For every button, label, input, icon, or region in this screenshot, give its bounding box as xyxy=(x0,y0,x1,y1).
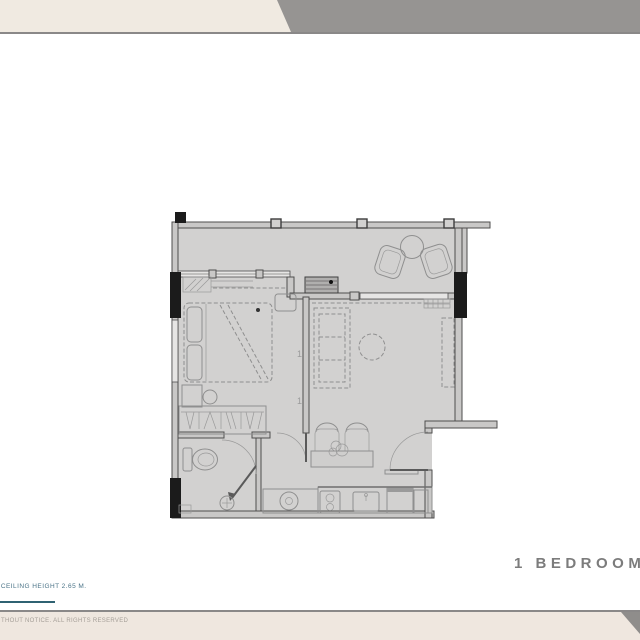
window-mullion-2 xyxy=(256,270,263,278)
column-west-upper xyxy=(170,272,181,318)
parapet-post-2 xyxy=(357,219,367,228)
bottom-banner-gray-wedge xyxy=(621,612,640,634)
rights-reserved-note: THOUT NOTICE. ALL RIGHTS RESERVED xyxy=(1,618,128,624)
column-marker-corner xyxy=(175,212,186,223)
bedroom-living-wall xyxy=(303,297,309,433)
parapet-post-3 xyxy=(444,219,454,228)
balcony-parapet-wall xyxy=(172,222,490,228)
door-tag-upper: 1 xyxy=(297,349,302,359)
top-banner-cream-shape xyxy=(0,0,640,32)
dining-table xyxy=(311,451,373,467)
east-step-wall xyxy=(425,421,497,428)
page-title: 1 BEDROOM xyxy=(514,555,640,572)
bathroom-north-wall-right xyxy=(252,432,270,438)
teal-accent-line xyxy=(0,601,55,603)
ceiling-height-note: - CEILING HEIGHT 2.65 M. xyxy=(0,583,87,590)
column-west-lower xyxy=(170,478,181,518)
bed-switch-dot xyxy=(256,308,260,312)
balcony-sliding-door xyxy=(360,293,448,299)
column-east xyxy=(454,272,467,318)
bathroom-east-wall xyxy=(256,438,261,511)
floor-plan: 1 1 xyxy=(160,200,510,530)
brochure-page: 1 1 xyxy=(0,0,640,640)
bedroom-west-window xyxy=(172,320,178,382)
bottom-banner xyxy=(0,612,640,640)
parapet-post-1 xyxy=(271,219,281,228)
top-banner xyxy=(0,0,640,34)
sliding-door-jamb xyxy=(350,292,359,300)
south-wall xyxy=(172,511,434,518)
ac-condenser-unit xyxy=(305,277,338,293)
east-wall-upper xyxy=(455,228,462,421)
door-tag-lower: 1 xyxy=(297,396,302,406)
bathroom-north-wall-left xyxy=(178,432,224,438)
